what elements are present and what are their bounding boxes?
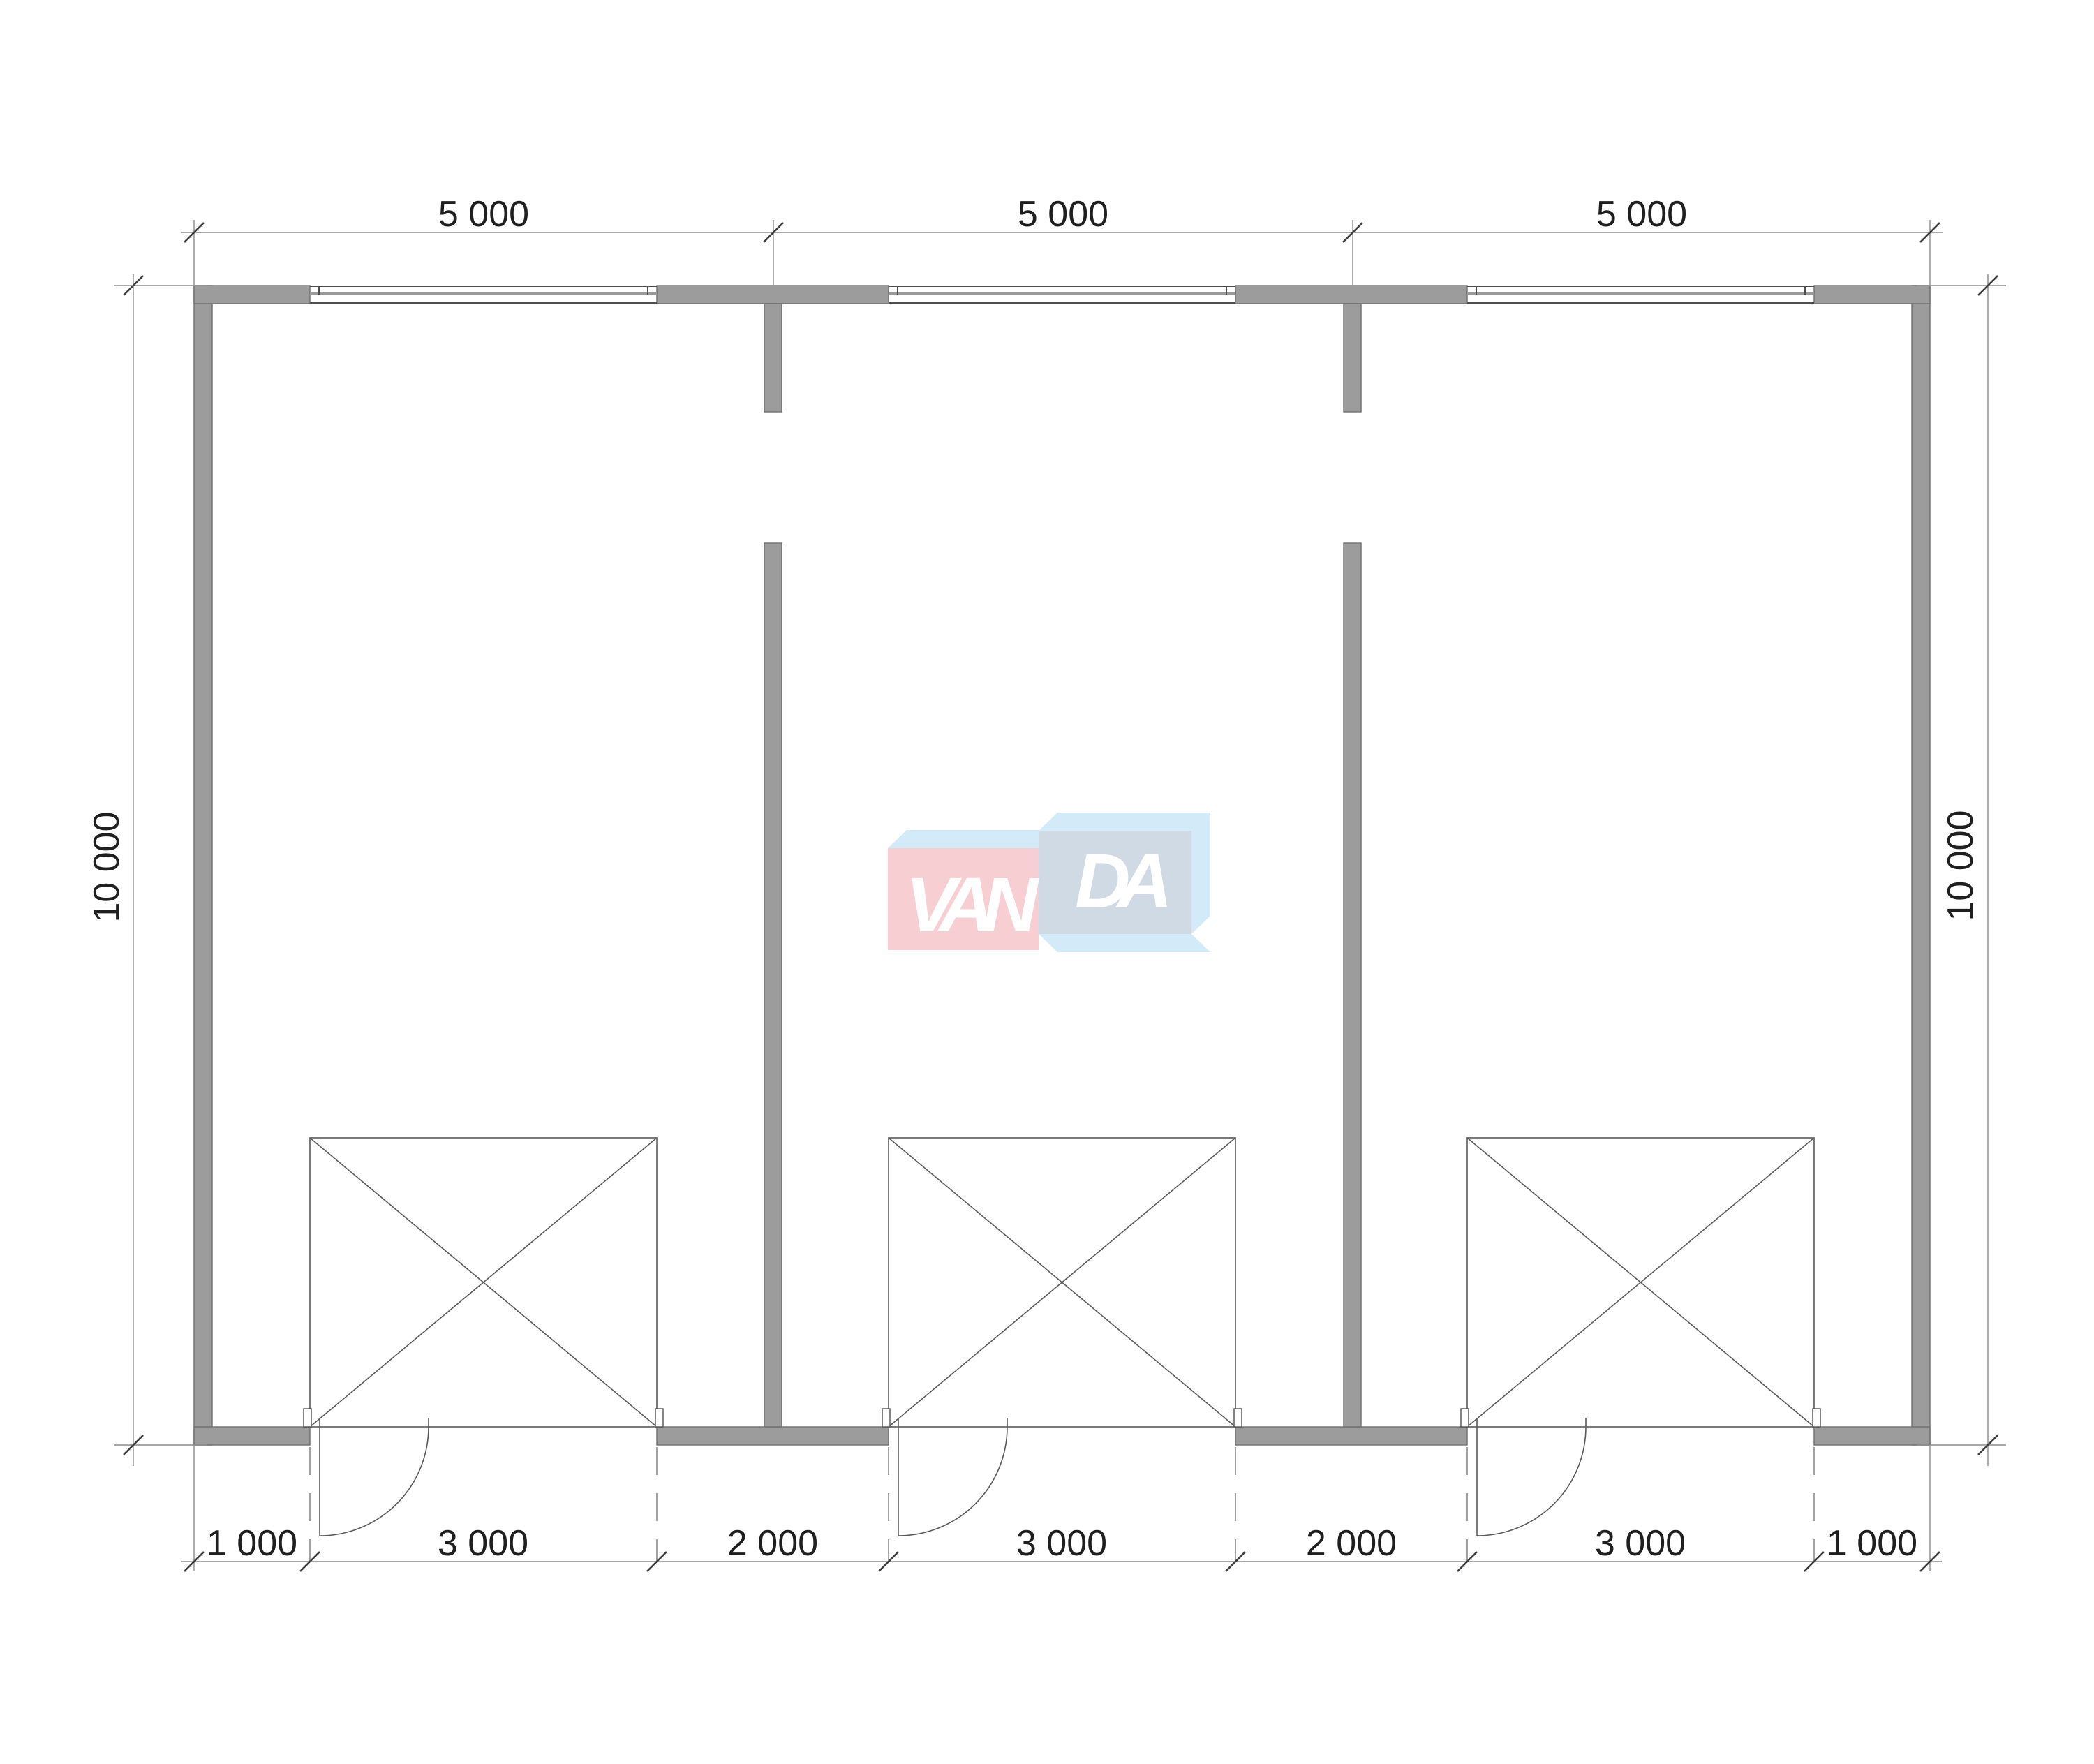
dim-label-bottom-2: 3 000 [438,1523,528,1564]
logo-text-da: DA [1075,838,1173,924]
dim-label-top-3: 5 000 [1596,194,1687,235]
garage-door-box-2 [889,1138,1235,1427]
door-swing-arc [320,1427,429,1536]
partition-2-stub [1344,304,1361,412]
door-jamb [655,1409,663,1427]
logo-right-box-side-face [1191,813,1210,934]
logo-right-box-bottom-face [1039,934,1210,952]
wall-top-segment [1814,286,1930,304]
wall-top-segment [194,286,310,304]
dim-label-left: 10 000 [87,811,127,922]
door-swing-arc [898,1427,1007,1536]
wall-bottom-segment [657,1427,889,1445]
garage-door-box-1 [310,1138,657,1427]
dim-label-bottom-7: 1 000 [1827,1523,1917,1564]
doors [304,1409,1820,1536]
wall-top-segment [657,286,889,304]
garage-door-box-3 [1467,1138,1814,1427]
window-2 [889,286,1235,303]
door-2 [882,1409,1242,1536]
floor-plan-drawing: 5 000 5 000 5 000 1 000 3 000 2 000 3 00… [0,0,2094,1764]
partition-2 [1344,543,1361,1427]
dim-label-bottom-4: 3 000 [1016,1523,1107,1564]
wall-top-segment [1235,286,1467,304]
door-swing-arc [1477,1427,1586,1536]
door-1 [304,1409,663,1536]
logo-right-box-top-face [1039,813,1210,831]
dim-label-bottom-3: 2 000 [727,1523,818,1564]
logo-text-van: VAN [905,862,1040,948]
dim-label-top-2: 5 000 [1018,194,1108,235]
wall-bottom-segment [1235,1427,1467,1445]
window-3 [1467,286,1814,303]
windows [310,286,1814,303]
dimension-top: 5 000 5 000 5 000 [181,194,1943,286]
partition-1 [764,543,782,1427]
door-jamb [1461,1409,1469,1427]
door-jamb [882,1409,890,1427]
dim-label-top-1: 5 000 [438,194,529,235]
dimension-bottom: 1 000 3 000 2 000 3 000 2 000 3 000 1 00… [181,1446,1942,1571]
dim-label-right: 10 000 [1940,810,1981,921]
door-jamb [304,1409,311,1427]
wall-bottom-segment [194,1427,310,1445]
dim-label-bottom-6: 3 000 [1595,1523,1686,1564]
floor-plan-page: 5 000 5 000 5 000 1 000 3 000 2 000 3 00… [0,0,2094,1764]
door-jamb [1234,1409,1242,1427]
dimension-left: 10 000 [87,274,207,1466]
dim-label-bottom-5: 2 000 [1306,1523,1397,1564]
garage-door-boxes [310,1138,1814,1427]
door-jamb [1813,1409,1820,1427]
logo-left-box-top-face [888,830,1039,848]
wall-right [1912,286,1930,1445]
door-3 [1461,1409,1820,1536]
partition-1-stub [764,304,782,412]
wall-left [194,286,212,1445]
dim-label-bottom-1: 1 000 [207,1523,297,1564]
wall-bottom-segment [1814,1427,1930,1445]
watermark-logo: VAN DA [888,813,1210,952]
window-1 [310,286,657,303]
